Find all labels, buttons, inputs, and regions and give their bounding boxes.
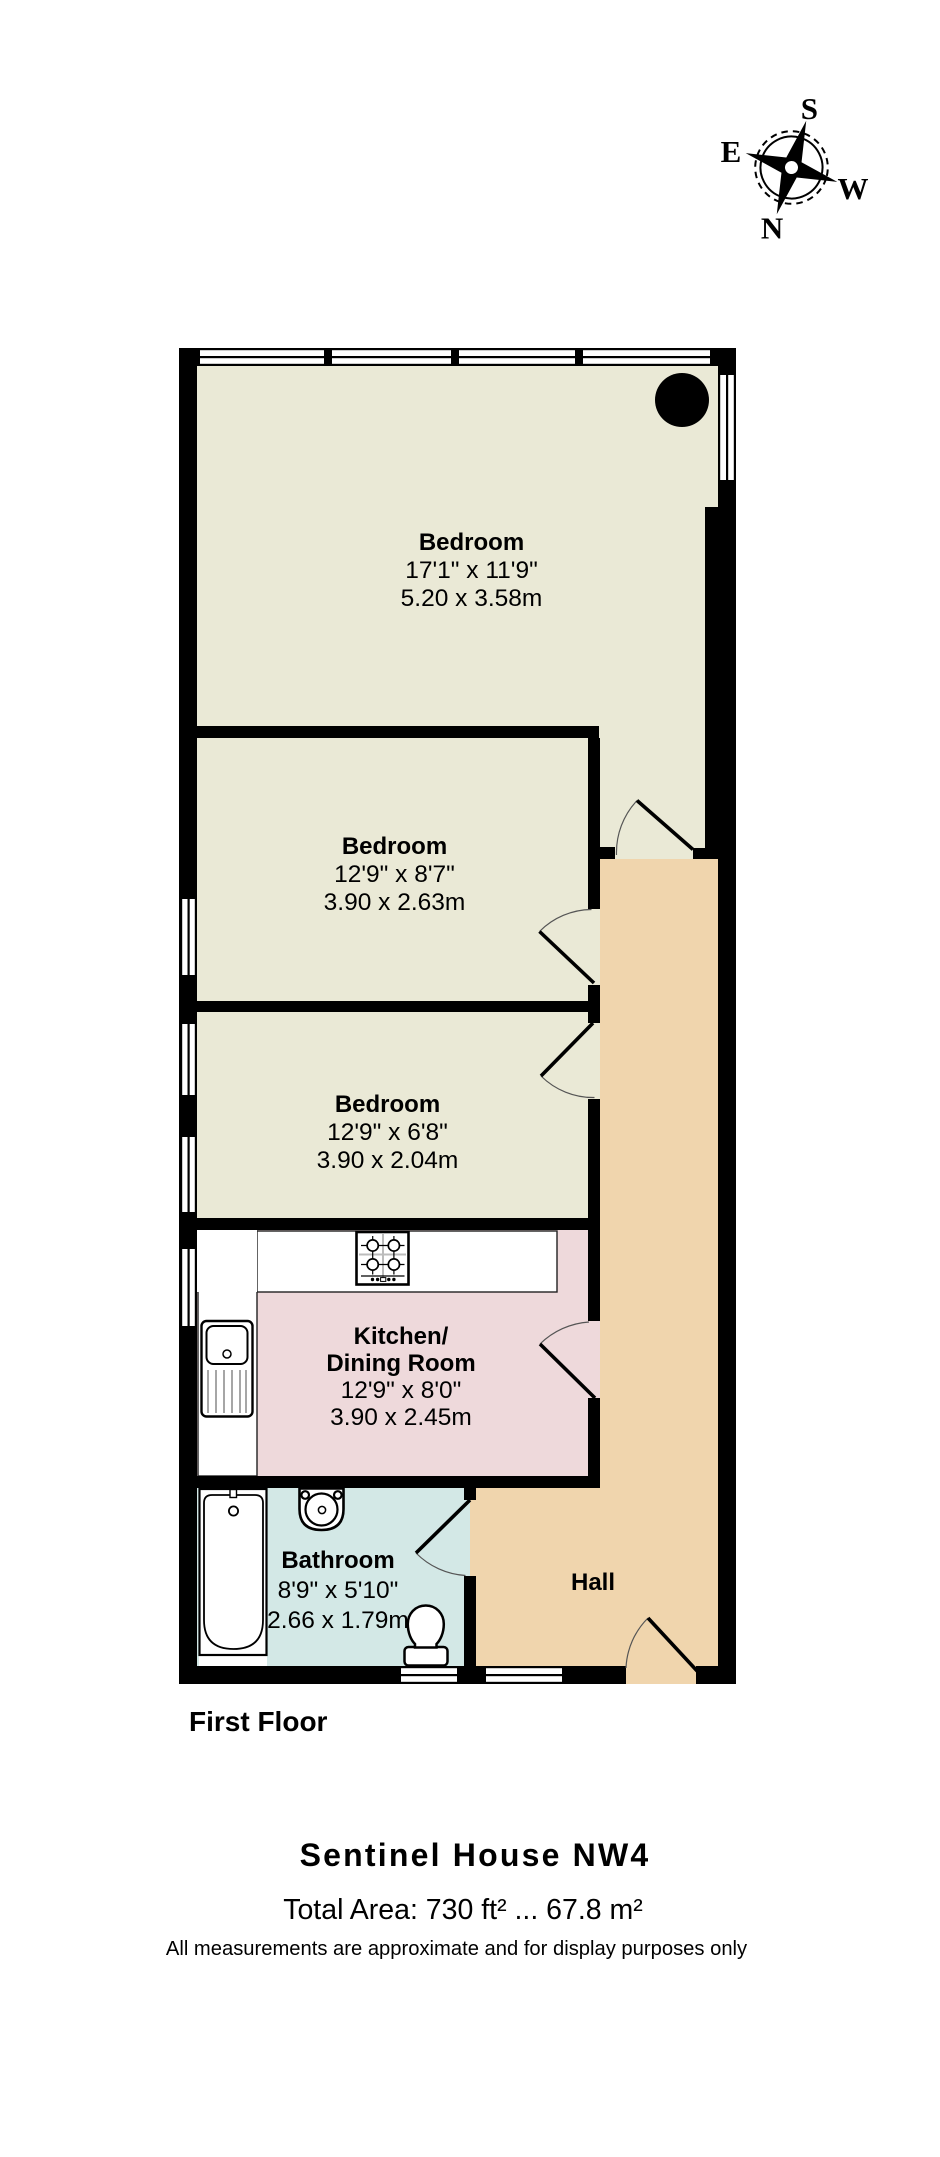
- svg-text:Dining Room: Dining Room: [326, 1350, 475, 1377]
- svg-text:12'9" x 8'0": 12'9" x 8'0": [341, 1377, 462, 1404]
- svg-text:8'9" x 5'10": 8'9" x 5'10": [278, 1577, 399, 1604]
- svg-text:All measurements are approxima: All measurements are approximate and for…: [166, 1938, 748, 1960]
- svg-text:First Floor: First Floor: [189, 1706, 328, 1737]
- svg-text:2.66 x 1.79m: 2.66 x 1.79m: [267, 1607, 409, 1634]
- svg-text:Bedroom: Bedroom: [419, 529, 524, 556]
- svg-text:W: W: [838, 171, 869, 206]
- svg-text:S: S: [801, 91, 818, 126]
- svg-text:N: N: [761, 211, 783, 246]
- svg-text:3.90 x 2.45m: 3.90 x 2.45m: [330, 1404, 472, 1431]
- svg-text:3.90 x 2.04m: 3.90 x 2.04m: [317, 1147, 459, 1174]
- svg-text:Total Area: 730 ft² ... 67.8 m: Total Area: 730 ft² ... 67.8 m²: [283, 1894, 643, 1926]
- svg-text:Bedroom: Bedroom: [342, 833, 447, 860]
- svg-text:Sentinel House NW4: Sentinel House NW4: [300, 1837, 651, 1873]
- svg-text:Kitchen/: Kitchen/: [354, 1323, 449, 1350]
- svg-text:Bathroom: Bathroom: [281, 1547, 394, 1574]
- svg-text:Bedroom: Bedroom: [335, 1091, 440, 1118]
- svg-text:12'9" x 8'7": 12'9" x 8'7": [334, 861, 455, 888]
- svg-text:17'1" x 11'9": 17'1" x 11'9": [405, 557, 538, 584]
- svg-text:E: E: [721, 134, 742, 169]
- svg-text:5.20 x 3.58m: 5.20 x 3.58m: [401, 585, 543, 612]
- svg-text:Hall: Hall: [571, 1569, 615, 1596]
- svg-text:3.90 x 2.63m: 3.90 x 2.63m: [324, 889, 466, 916]
- svg-text:12'9" x 6'8": 12'9" x 6'8": [327, 1119, 448, 1146]
